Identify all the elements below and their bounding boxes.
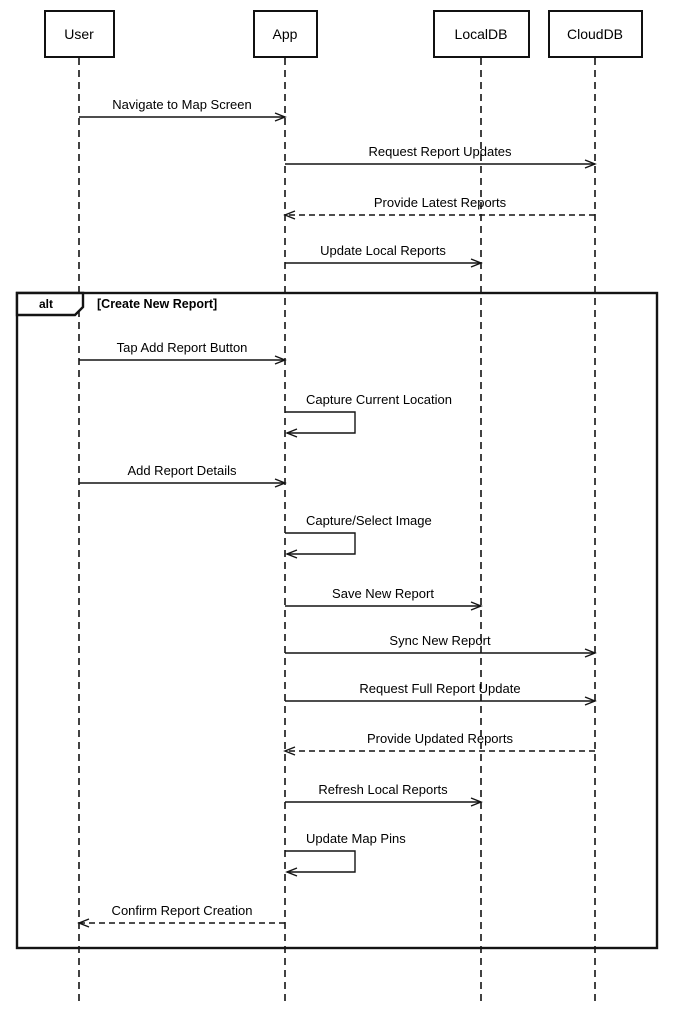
actor-label: User [64,26,94,42]
actor-box-clouddb: CloudDB [548,10,643,58]
alt-operator-label: alt [17,294,75,314]
message-label: Navigate to Map Screen [112,96,251,113]
message-label: Update Local Reports [320,242,446,259]
message-label: Provide Latest Reports [374,194,506,211]
message-label: Request Report Updates [368,143,511,160]
message-label: Request Full Report Update [359,680,520,697]
actor-box-localdb: LocalDB [433,10,530,58]
actor-box-app: App [253,10,318,58]
message-label: Capture Current Location [306,391,452,408]
self-message-loop [285,851,355,872]
actor-label: LocalDB [455,26,508,42]
message-label: Provide Updated Reports [367,730,513,747]
self-message-loop [285,412,355,433]
message-label: Save New Report [332,585,434,602]
self-message-loop [285,533,355,554]
message-label: Tap Add Report Button [117,339,248,356]
sequence-diagram: UserAppLocalDBCloudDBalt[Create New Repo… [0,0,675,1010]
actor-label: CloudDB [567,26,623,42]
message-label: Add Report Details [127,462,236,479]
message-label: Confirm Report Creation [112,902,253,919]
message-label: Update Map Pins [306,830,406,847]
message-label: Refresh Local Reports [318,781,447,798]
message-label: Sync New Report [389,632,490,649]
actor-label: App [273,26,298,42]
diagram-lines-layer [0,0,675,1010]
actor-box-user: User [44,10,115,58]
message-label: Capture/Select Image [306,512,432,529]
alt-condition-label: [Create New Report] [97,294,217,314]
